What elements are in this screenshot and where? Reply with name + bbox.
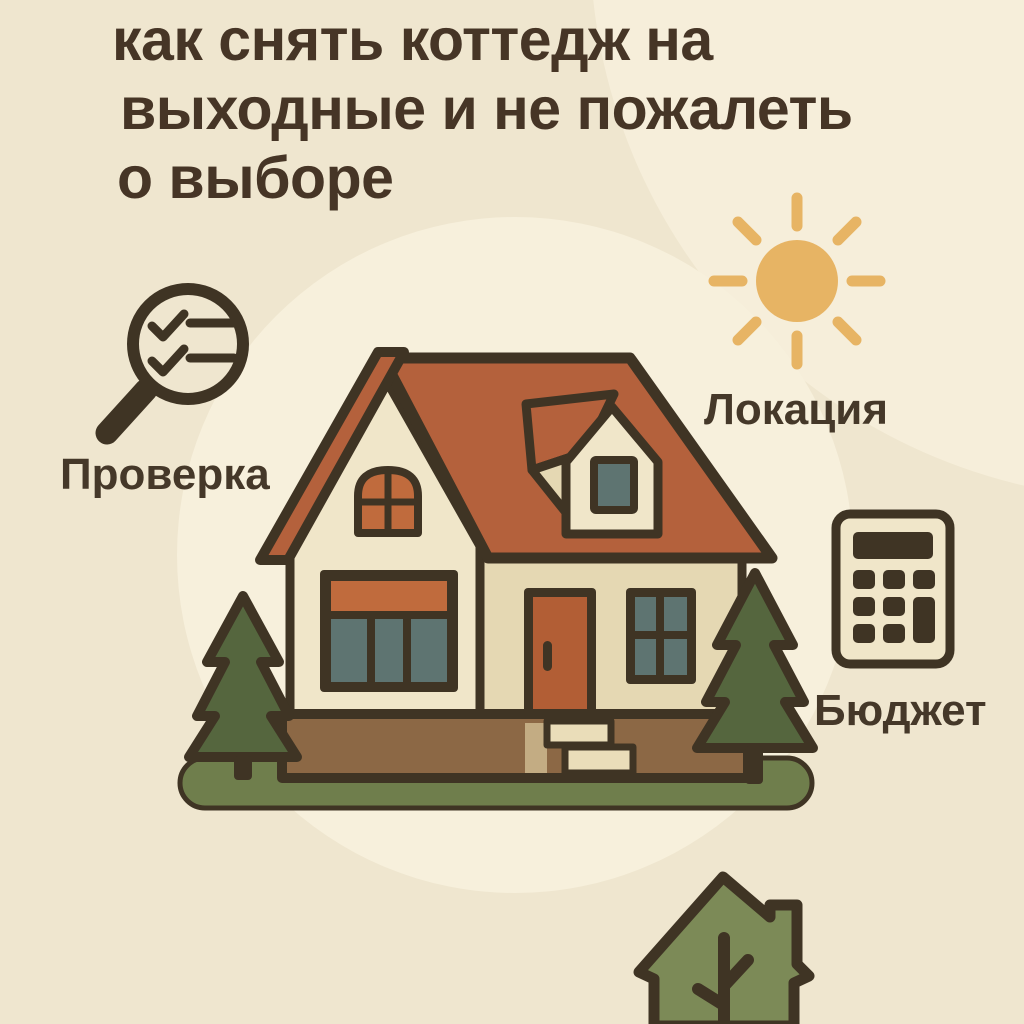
title-line-2: выходные и не пожалеть [112,75,853,144]
calculator-key [883,624,905,643]
calculator-key-tall [913,597,935,643]
page-title: как снять коттедж на выходные и не пожал… [112,6,853,213]
window-mullion [635,631,687,639]
title-line-1: как снять коттедж на [112,6,853,75]
calculator-key [853,570,875,589]
window-header [331,581,447,611]
calculator-key [883,597,905,616]
calculator-key [853,624,875,643]
calculator-display [853,532,933,559]
foundation [282,714,748,778]
living-room-window [320,570,458,692]
calculator-icon [836,514,950,664]
porch-step [547,721,611,745]
cottage-right-wall [478,552,742,722]
window-mullion [367,619,375,682]
label-location: Локация [704,385,888,435]
calculator-key [913,570,935,589]
checkmark [152,349,184,372]
door-panel [533,597,587,722]
checkmark [152,314,184,337]
sun-disc [756,240,838,322]
pine-trunk [745,746,763,784]
poster: как снять коттедж на выходные и не пожал… [0,0,1024,1024]
window-glass [331,619,447,682]
door-handle [543,641,552,671]
pine-trunk [234,756,252,780]
sun-icon [714,198,880,364]
front-door [524,588,596,722]
calculator-key [883,570,905,589]
window-mullion [403,619,411,682]
title-line-3: о выборе [112,144,853,213]
side-window [626,588,696,684]
eco-house-tree-icon [639,877,809,1024]
porch-step [565,747,633,773]
label-check: Проверка [60,450,270,500]
calculator-key [853,597,875,616]
dormer-window [598,464,630,506]
label-budget: Бюджет [814,686,987,736]
magnifier-handle [107,390,146,433]
arched-window [358,470,418,533]
